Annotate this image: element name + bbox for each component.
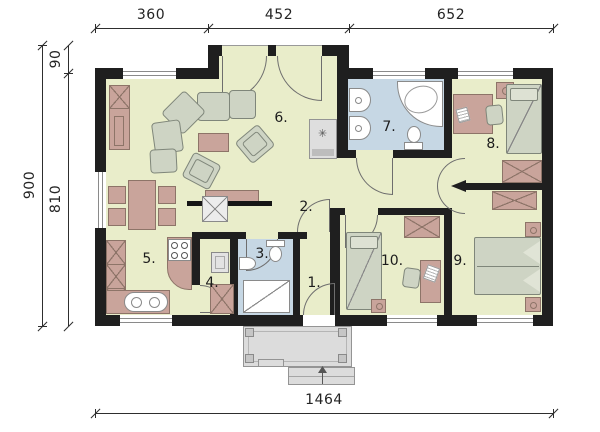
coffee-table-icon (198, 133, 229, 152)
entrance-arrow-line (322, 372, 323, 384)
lamp-icon (376, 303, 383, 310)
washer-door-icon (215, 256, 225, 269)
interior-wall (444, 208, 452, 316)
papers-icon (423, 264, 440, 283)
interior-wall (278, 232, 307, 239)
dimension-label-90: 90 (48, 50, 64, 69)
porch-post (338, 328, 347, 337)
tv-icon (187, 201, 272, 206)
dimension-tick (38, 45, 47, 46)
desk-chair-icon (402, 267, 422, 289)
interior-wall (378, 208, 444, 215)
pillow-icon (510, 88, 538, 101)
dimension-label-360: 360 (137, 7, 165, 23)
burner-icon (181, 242, 188, 249)
window (373, 68, 425, 79)
room-label-9: 9. (453, 253, 466, 269)
nightstand-icon (525, 297, 541, 312)
stove-icon (168, 239, 191, 261)
cabinet-door-icon (109, 85, 130, 109)
room-label-6: 6. (274, 110, 287, 126)
dimension-tick (553, 24, 554, 33)
window (387, 315, 437, 326)
porch-post (245, 328, 254, 337)
papers-icon (455, 107, 470, 124)
burner-icon (181, 252, 188, 259)
interior-wall (192, 232, 246, 239)
interior-wall (465, 183, 543, 190)
burner-icon (171, 252, 178, 259)
dimension-label-652: 652 (437, 7, 465, 23)
drain-icon (355, 97, 362, 104)
nightstand-icon (525, 222, 541, 237)
pillow-icon (350, 236, 378, 249)
nightstand-icon (371, 299, 386, 313)
entrance-door-opening (222, 45, 268, 56)
lamp-icon (530, 227, 537, 234)
window (477, 315, 533, 326)
room-label-1: 1. (307, 275, 320, 291)
pillow-icon (523, 241, 540, 264)
double-sink-icon (124, 292, 168, 312)
dimension-tick (64, 73, 73, 74)
toilet-icon (407, 126, 421, 143)
washer-icon (211, 252, 229, 273)
bed-center-line (477, 266, 539, 267)
entrance-door-opening (276, 45, 322, 56)
desk-icon (420, 260, 441, 303)
dimension-tick (95, 409, 96, 418)
dimension-line-top (95, 28, 553, 29)
porch-inner-line (248, 331, 347, 362)
double-bed-icon (474, 237, 541, 295)
dimension-line-left-outer (42, 45, 43, 326)
kitchen-cabinet-icon (106, 264, 126, 289)
dimension-tick (208, 24, 209, 33)
interior-wall (393, 150, 444, 158)
window (120, 315, 172, 326)
armchair-seat-icon (188, 158, 215, 184)
sofa-icon (149, 148, 177, 173)
interior-wall (293, 239, 300, 315)
armchair-seat-icon (242, 131, 269, 158)
water-heater-icon (202, 196, 228, 222)
washbasin-icon (349, 88, 371, 112)
sink-bowl-icon (149, 297, 160, 308)
dimension-label-452: 452 (265, 7, 293, 23)
dimension-line-bottom (95, 413, 553, 414)
kitchen-cabinet-icon (106, 240, 126, 265)
toilet-tank-icon (404, 142, 423, 150)
fireplace-hearth-icon (312, 149, 334, 156)
dimension-line-left-inner (68, 45, 69, 326)
room-label-10: 10. (381, 253, 403, 269)
dimension-label-810: 810 (48, 185, 64, 213)
room-label-3: 3. (255, 246, 268, 262)
washbasin-icon (349, 116, 371, 140)
wardrobe-icon (404, 216, 440, 238)
floor-plan: 360 452 652 900 90 810 1464 (0, 0, 600, 432)
room-label-4: 4. (205, 275, 218, 291)
wardrobe-icon (492, 191, 537, 210)
dimension-tick (349, 24, 350, 33)
fireplace-symbol: ✳ (318, 128, 327, 139)
back-door-opening (303, 315, 335, 326)
window (458, 68, 513, 79)
sofa-icon (197, 92, 230, 121)
toilet-icon (269, 246, 282, 262)
room-label-5: 5. (142, 251, 155, 267)
chair-icon (108, 186, 126, 204)
room-label-8: 8. (486, 136, 499, 152)
fireplace-icon: ✳ (309, 119, 337, 159)
dimension-tick (553, 409, 554, 418)
washbasin-icon (239, 257, 256, 270)
lamp-icon (530, 302, 537, 309)
porch-step-pad (258, 359, 284, 367)
shower-icon (243, 280, 290, 313)
interior-wall (444, 79, 452, 158)
dimension-tick (95, 24, 96, 33)
bed-icon (506, 84, 542, 154)
interior-wall (330, 208, 345, 215)
dining-table-icon (128, 180, 156, 230)
sofa-icon (229, 90, 256, 119)
chair-icon (158, 208, 176, 226)
pillow-icon (523, 269, 540, 292)
window (95, 172, 106, 228)
dimension-label-900: 900 (22, 171, 38, 199)
drain-icon (355, 125, 362, 132)
room-label-7: 7. (382, 119, 395, 135)
chair-icon (108, 208, 126, 226)
burner-icon (171, 242, 178, 249)
porch-post (245, 354, 254, 363)
desk-chair-icon (485, 104, 504, 126)
cabinet-icon (109, 85, 130, 150)
cabinet-panel-icon (114, 116, 124, 146)
sink-bowl-icon (131, 297, 142, 308)
chair-icon (158, 186, 176, 204)
dimension-tick (38, 326, 47, 327)
interior-wall (192, 239, 200, 285)
room-label-2: 2. (299, 199, 312, 215)
dimension-label-1464: 1464 (305, 392, 343, 408)
porch-post (338, 354, 347, 363)
wardrobe-icon (502, 160, 542, 183)
interior-wall (337, 56, 348, 158)
window (123, 68, 176, 79)
